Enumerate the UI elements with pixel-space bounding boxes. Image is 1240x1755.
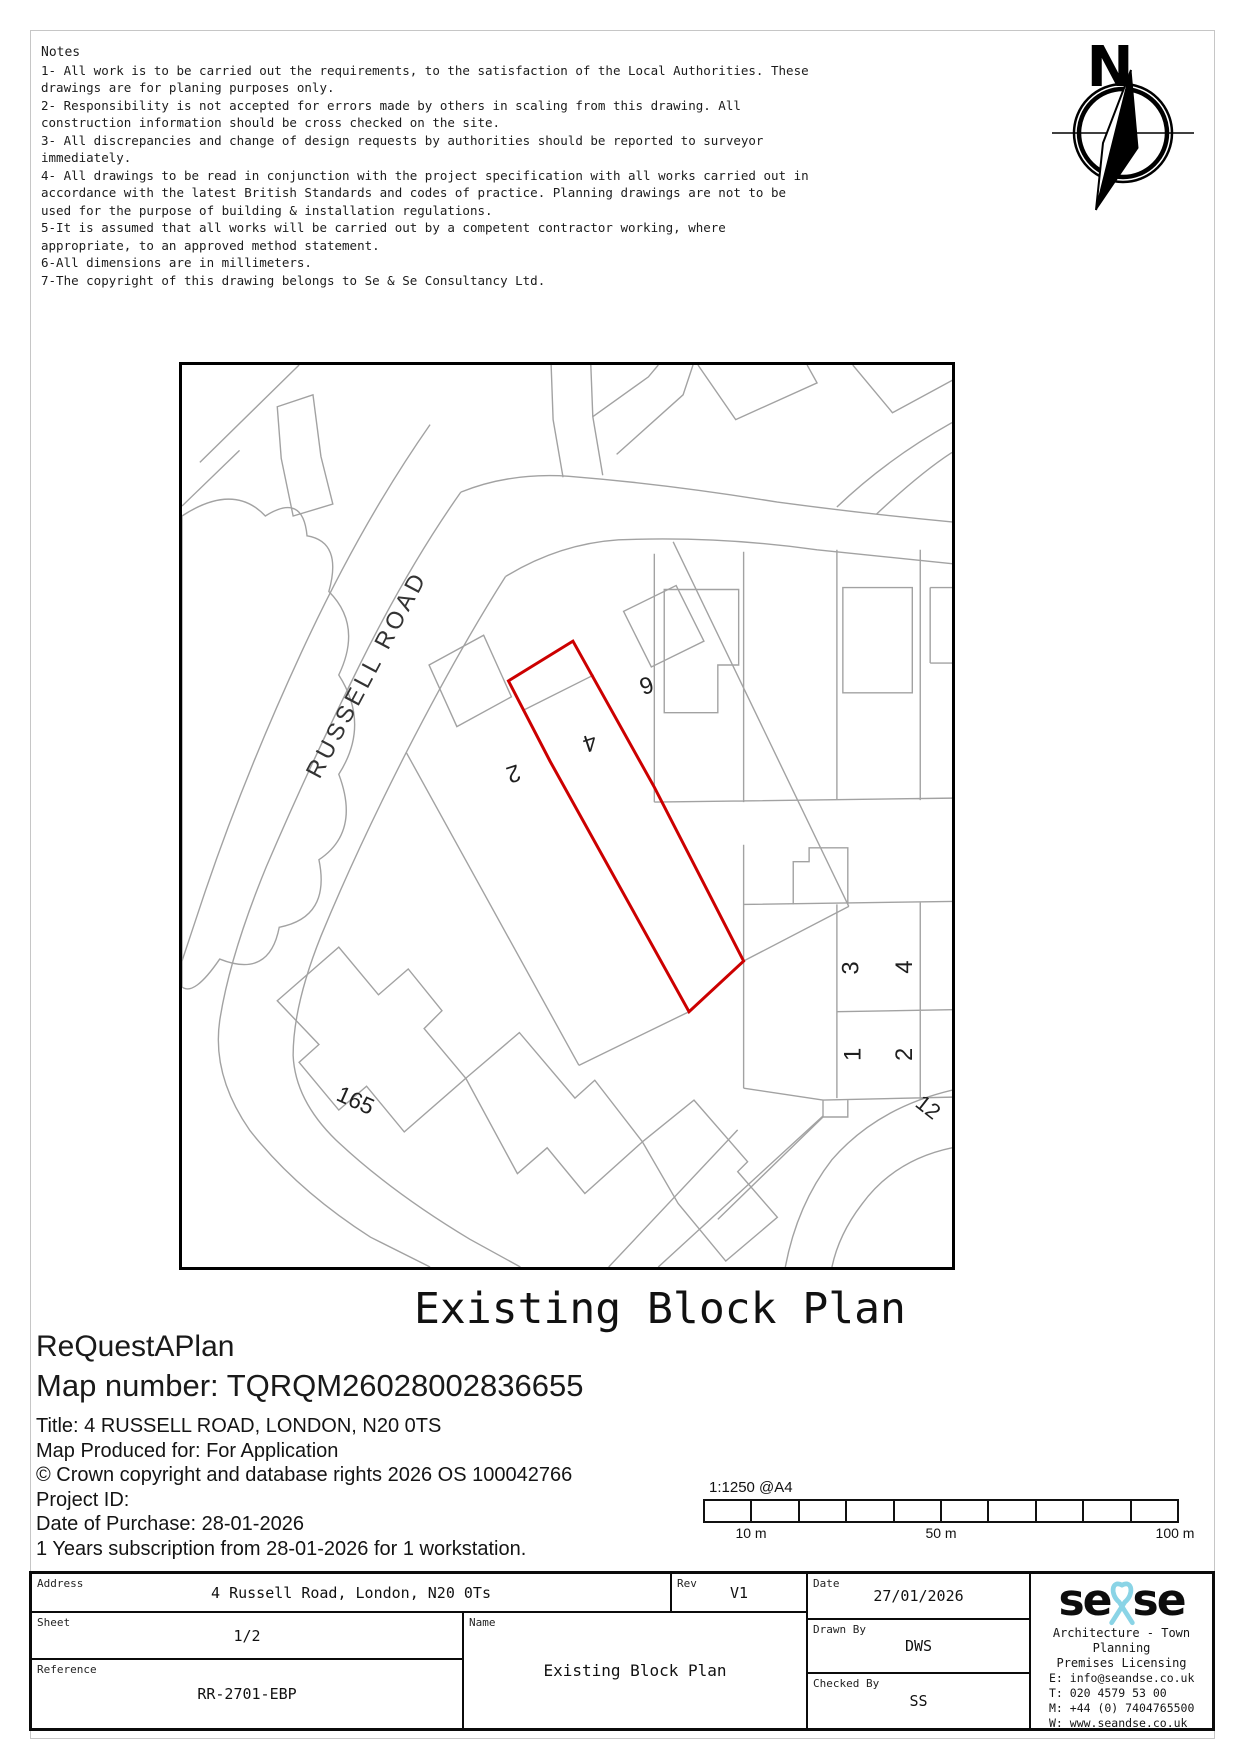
sheet-value: 1/2: [32, 1613, 462, 1658]
sheet-cell: Sheet 1/2: [32, 1613, 464, 1660]
reference-cell: Reference RR-2701-EBP: [32, 1660, 464, 1728]
scale-segment: [989, 1501, 1036, 1521]
map-number: Map number: TQRQM26028002836655: [36, 1368, 583, 1404]
note-line: 7-The copyright of this drawing belongs …: [41, 272, 809, 290]
metadata-line: Title: 4 RUSSELL ROAD, LONDON, N20 0TS: [36, 1414, 572, 1439]
scale-segment: [800, 1501, 847, 1521]
company-logo-cell: se se Architecture - Town Planning Premi…: [1031, 1574, 1212, 1728]
scale-segment: [942, 1501, 989, 1521]
notes-title: Notes: [41, 44, 809, 62]
note-line: immediately.: [41, 149, 809, 167]
name-cell: Name Existing Block Plan: [464, 1613, 808, 1728]
scale-bar: 1:1250 @A4 10 m 50 m 100 m: [703, 1479, 1179, 1541]
scale-segment: [847, 1501, 894, 1521]
metadata-line: 1 Years subscription from 28-01-2026 for…: [36, 1537, 572, 1562]
scale-tick-10: 10 m: [735, 1525, 766, 1541]
north-arrow-icon: N: [1048, 26, 1198, 223]
note-line: 3- All discrepancies and change of desig…: [41, 132, 809, 150]
scale-bar-segments: [703, 1499, 1179, 1523]
block-plan-map: RUSSELL ROAD 2 4 6 165 3 4 1 2 12: [182, 365, 952, 1267]
date-label: Date: [813, 1577, 840, 1590]
metadata-line: Map Produced for: For Application: [36, 1439, 572, 1464]
notes-section: Notes 1- All work is to be carried out t…: [41, 44, 809, 289]
plot-label-4b: 4: [891, 960, 918, 973]
plot-label-1b: 1: [839, 1048, 866, 1061]
checked-by-cell: Checked By SS: [808, 1674, 1031, 1728]
logo-mobile: M: +44 (0) 7404765500: [1031, 1701, 1212, 1716]
notes-list: 1- All work is to be carried out the req…: [41, 62, 809, 290]
drawing-title: Existing Block Plan: [350, 1284, 970, 1334]
block-plan-frame: RUSSELL ROAD 2 4 6 165 3 4 1 2 12: [179, 362, 955, 1270]
logo-tagline-1: Architecture - Town Planning: [1031, 1626, 1212, 1656]
drawn-by-label: Drawn By: [813, 1623, 866, 1636]
logo-ribbon-icon: [1106, 1578, 1138, 1628]
map-labels: RUSSELL ROAD 2 4 6 165 3 4 1 2 12: [301, 566, 946, 1124]
note-line: 4- All drawings to be read in conjunctio…: [41, 167, 809, 185]
logo-text-left: se: [1058, 1576, 1110, 1626]
scale-segment: [705, 1501, 752, 1521]
drawing-sheet: Notes 1- All work is to be carried out t…: [0, 0, 1240, 1755]
scale-segment: [1037, 1501, 1084, 1521]
date-cell: Date 27/01/2026: [808, 1574, 1031, 1620]
metadata-line: Date of Purchase: 28-01-2026: [36, 1512, 572, 1537]
logo-tagline-2: Premises Licensing: [1031, 1656, 1212, 1671]
rev-cell: Rev V1: [672, 1574, 808, 1613]
scale-tick-50: 50 m: [925, 1525, 956, 1541]
scale-segment: [1084, 1501, 1131, 1521]
address-label: Address: [37, 1577, 83, 1590]
note-line: 1- All work is to be carried out the req…: [41, 62, 809, 80]
plot-label-2: 2: [503, 758, 524, 788]
sheet-label: Sheet: [37, 1616, 70, 1629]
map-metadata: Title: 4 RUSSELL ROAD, LONDON, N20 0TSMa…: [36, 1414, 572, 1561]
title-block: Address 4 Russell Road, London, N20 0Ts …: [29, 1571, 1215, 1731]
note-line: 5-It is assumed that all works will be c…: [41, 219, 809, 237]
note-line: appropriate, to an approved method state…: [41, 237, 809, 255]
reference-label: Reference: [37, 1663, 97, 1676]
north-label: N: [1087, 35, 1134, 100]
plot-label-4: 4: [579, 728, 600, 758]
note-line: accordance with the latest British Stand…: [41, 184, 809, 202]
logo-phone: T: 020 4579 53 00: [1031, 1686, 1212, 1701]
plot-label-2b: 2: [891, 1048, 918, 1061]
logo-email: E: info@seandse.co.uk: [1031, 1671, 1212, 1686]
note-line: construction information should be cross…: [41, 114, 809, 132]
site-outline: [508, 641, 743, 1012]
map-label-russell-road: RUSSELL ROAD: [301, 566, 433, 783]
note-line: used for the purpose of building & insta…: [41, 202, 809, 220]
plot-label-3b: 3: [837, 961, 864, 974]
date-value: 27/01/2026: [808, 1574, 1029, 1618]
metadata-line: © Crown copyright and database rights 20…: [36, 1463, 572, 1488]
scale-segment: [895, 1501, 942, 1521]
note-line: drawings are for planing purposes only.: [41, 79, 809, 97]
brand-name: ReQuestAPlan: [36, 1330, 234, 1364]
logo-website: W: www.seandse.co.uk: [1031, 1716, 1212, 1731]
logo-text-right: se: [1133, 1576, 1185, 1626]
scale-label: 1:1250 @A4: [703, 1479, 1179, 1496]
plot-label-12: 12: [911, 1090, 946, 1125]
plot-label-165: 165: [333, 1080, 378, 1119]
scale-segment: [752, 1501, 799, 1521]
address-cell: Address 4 Russell Road, London, N20 0Ts: [32, 1574, 672, 1613]
note-line: 2- Responsibility is not accepted for er…: [41, 97, 809, 115]
rev-label: Rev: [677, 1577, 697, 1590]
scale-tick-100: 100 m: [1156, 1525, 1195, 1541]
checked-by-label: Checked By: [813, 1677, 879, 1690]
name-value: Existing Block Plan: [464, 1613, 806, 1728]
address-value: 4 Russell Road, London, N20 0Ts: [32, 1574, 670, 1611]
scale-segment: [1132, 1501, 1177, 1521]
note-line: 6-All dimensions are in millimeters.: [41, 254, 809, 272]
metadata-line: Project ID:: [36, 1488, 572, 1513]
drawn-by-cell: Drawn By DWS: [808, 1620, 1031, 1674]
company-logo: se se: [1031, 1576, 1212, 1626]
map-linework: [182, 365, 952, 1267]
scale-ticks: 10 m 50 m 100 m: [703, 1523, 1179, 1541]
name-label: Name: [469, 1616, 496, 1629]
